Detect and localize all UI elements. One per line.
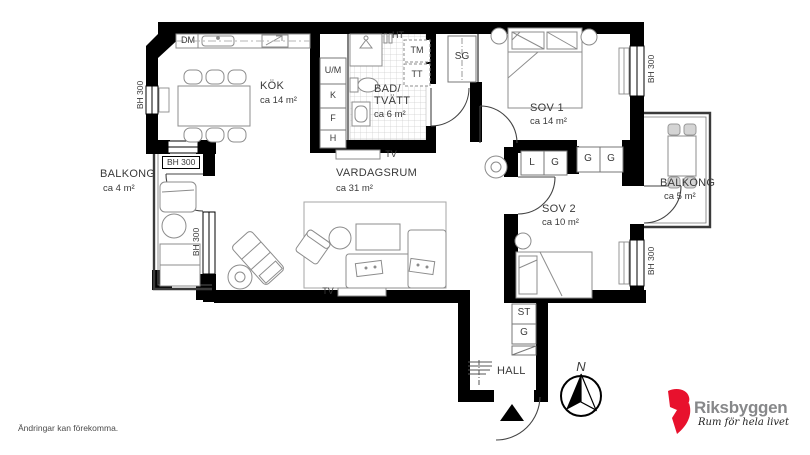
floorplan-drawing: [0, 0, 810, 455]
tv-bench: [336, 150, 380, 159]
label-fridge: K: [330, 91, 336, 100]
riksbyggen-logo: Riksbyggen Rum för hela livet: [664, 388, 804, 440]
room-label-sov1: SOV 1: [530, 103, 564, 114]
furniture: [160, 28, 696, 386]
sill-height-label: BH 300: [136, 81, 145, 109]
room-label-vardagsrum: VARDAGSRUM: [336, 168, 417, 179]
sill-height-label: BH 300: [647, 247, 656, 275]
room-area-bad: ca 6 m²: [374, 110, 406, 120]
room-area-balkong-right: ca 5 m²: [664, 192, 696, 202]
sill-height-label: BH 300: [192, 228, 201, 256]
label-closet-h: H: [330, 134, 337, 143]
label-tv: TV: [385, 150, 397, 159]
room-label-sov2: SOV 2: [542, 204, 576, 215]
label-wardrobe: G: [607, 154, 615, 164]
balcony-armchair: [160, 182, 196, 212]
nightstand: [491, 28, 507, 44]
room-area-balkong-left: ca 4 m²: [103, 184, 135, 194]
balcony-table: [162, 214, 186, 238]
room-area-sov1: ca 14 m²: [530, 117, 567, 127]
label-wardrobe: G: [520, 328, 528, 338]
compass-icon: [561, 374, 601, 416]
coffee-table: [356, 224, 400, 250]
label-freezer: F: [330, 114, 336, 123]
room-label-kok: KÖK: [260, 81, 284, 92]
brand-tagline: Rum för hela livet: [698, 417, 789, 428]
toilet-icon: [350, 78, 358, 92]
label-wardrobe: G: [551, 158, 559, 168]
tv-bench: [338, 288, 386, 296]
label-towel-dryer: HT: [392, 31, 404, 40]
disclaimer-text: Ändringar kan förekomma.: [18, 424, 118, 433]
room-area-kok: ca 14 m²: [260, 96, 297, 106]
label-tv: TV: [322, 287, 334, 296]
brand-name: Riksbyggen: [694, 398, 787, 418]
label-dishwasher: DM: [181, 36, 195, 45]
label-wardrobe: G: [584, 154, 592, 164]
label-cleaning-closet: SG: [455, 52, 469, 62]
side-table: [329, 227, 351, 249]
nightstand: [515, 233, 531, 249]
label-linen-closet: L: [529, 158, 535, 168]
room-area-vardagsrum: ca 31 m²: [336, 184, 373, 194]
sill-height-label: BH 300: [647, 55, 656, 83]
label-tumble-dryer: TT: [412, 70, 423, 79]
room-label-balkong-right: BALKONG: [660, 178, 715, 189]
towel-dryer-icon: [384, 34, 387, 43]
label-cloak-closet: ST: [518, 308, 531, 318]
nightstand: [581, 29, 597, 45]
entrance-arrow: [500, 404, 524, 421]
room-label-bad-1: BAD/: [374, 84, 401, 95]
room-area-sov2: ca 10 m²: [542, 218, 579, 228]
coat-rack-icon: [468, 360, 492, 386]
floorplan-page: KÖK ca 14 m² BAD/ TVÄTT ca 6 m² SOV 1 ca…: [0, 0, 810, 455]
dining-table: [178, 86, 250, 126]
riksbyggen-logo-icon: [664, 388, 692, 438]
label-washing-machine: TM: [411, 46, 424, 55]
room-label-hall: HALL: [497, 366, 526, 377]
balcony-table: [668, 136, 696, 176]
room-label-bad-2: TVÄTT: [374, 96, 410, 107]
compass-north-label: N: [576, 360, 585, 373]
room-label-balkong-left: BALKONG: [100, 169, 155, 180]
label-closet-um: U/M: [325, 66, 342, 75]
sill-height-label: BH 300: [162, 156, 200, 169]
